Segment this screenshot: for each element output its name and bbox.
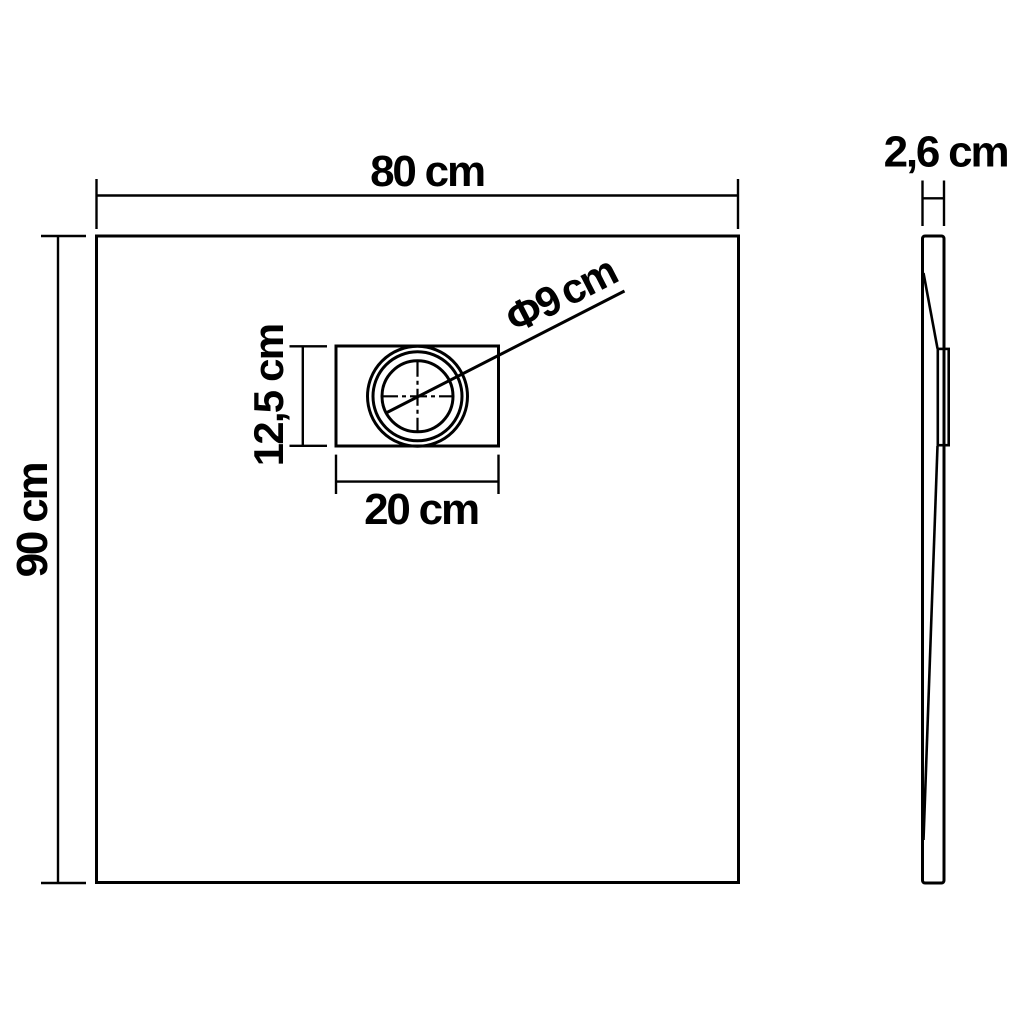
svg-text:80 cm: 80 cm <box>370 147 484 196</box>
svg-text:20 cm: 20 cm <box>364 485 478 534</box>
svg-text:2,6 cm: 2,6 cm <box>884 128 1008 177</box>
svg-text:12,5 cm: 12,5 cm <box>245 325 292 467</box>
svg-text:90 cm: 90 cm <box>8 464 57 578</box>
